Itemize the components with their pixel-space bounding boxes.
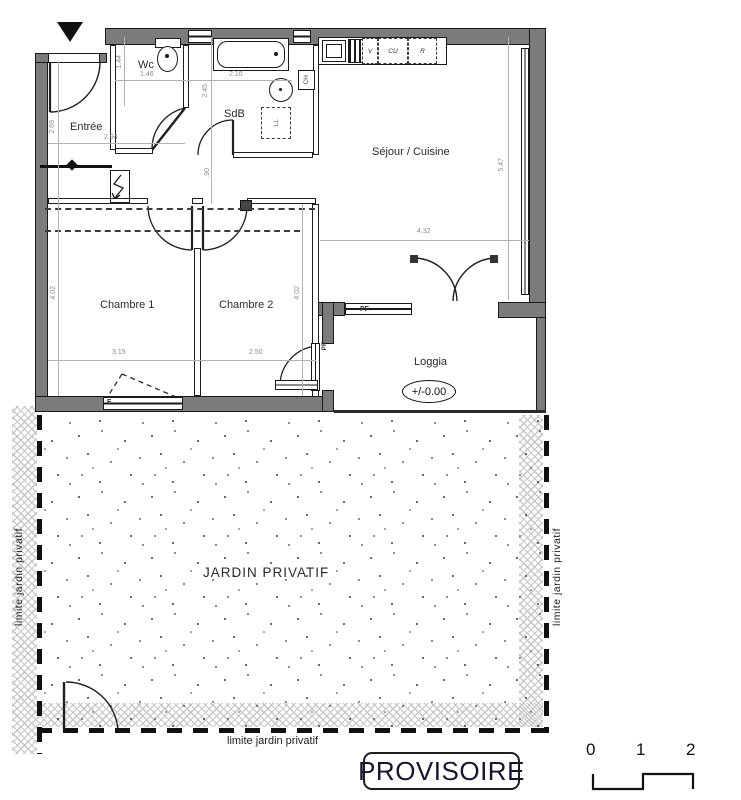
chambre2-door-arc [203,206,247,250]
dim-chambre1-w: 3.15 [112,349,126,356]
garden-hatch-bottom [37,703,543,727]
floor-plan: LL CH V CU R 1.44 1.46 2.16 2.45 2.69 2.… [0,0,741,800]
washer-label: LL [273,119,280,126]
room-label-sejour: Séjour / Cuisine [372,146,450,158]
room-label-jardin: JARDIN PRIVATIF [203,565,329,580]
limit-label-left: limite jardin privatif [13,528,25,626]
room-label-wc: Wc [138,59,154,71]
dim-line-sejour-horiz [320,240,529,241]
kitchen-v-label: V [368,48,372,55]
window-chambre2-pf-leaf [275,380,318,390]
window-top-sdb-right [293,30,311,43]
wall-right [529,28,546,318]
kitchen-slot-v: V [362,38,378,64]
toilet-bowl [157,46,178,72]
garden-hatch-right [519,415,543,727]
toilet-drain [165,54,169,58]
loggia-door-post-right [490,255,498,263]
partition-sdb-bottom [233,152,313,158]
room-label-sdb: SdB [224,108,245,120]
partition-hall-chambres-left [48,198,148,204]
scale-tick-1: 1 [636,740,645,760]
loggia-door-arc-right [453,258,495,301]
dim-sdb-h: 2.45 [202,84,209,98]
wall-bottom [35,396,334,412]
dim-line-wc-vert [124,37,125,106]
chambre1-window-swing [108,374,176,397]
dim-entree-w: 2.94 [104,134,118,141]
dim-sejour-w: 4.32 [417,228,431,235]
room-label-loggia: Loggia [414,356,447,368]
partition-wc-sdb [183,45,189,108]
kitchen-sink-inner [326,44,342,58]
electrical-panel-box [110,170,130,203]
chambre1-door-arc [148,206,192,250]
water-heater-box: CH [298,70,315,90]
kitchen-slot-cu: CU [378,38,408,64]
wall-right-loggia [536,302,546,413]
window-chambre1-f [103,397,183,410]
kitchen-r-label: R [420,48,425,55]
level-marker: +/-0.00 [402,380,456,403]
dim-sdb-w: 2.16 [229,71,243,78]
partition-chambre1-chambre2 [194,248,201,396]
room-label-entree: Entrée [70,121,102,133]
dim-line-sejour-vert [508,37,509,300]
dim-chambre2-h: 4.02 [294,286,301,300]
sdb-door-arc [198,120,233,155]
entrance-marker-triangle [57,22,83,42]
dim-wc-h: 1.44 [116,55,123,69]
garden-limit-line-left [37,415,42,754]
wall-sejour-loggia-right [498,302,546,318]
wardrobe-diamond [66,159,77,170]
garden-limit-line-bottom [37,728,549,733]
scale-tick-0: 0 [586,740,595,760]
dim-entree-h: 2.69 [49,120,56,134]
loggia-garden-edge [334,410,546,413]
bathtub-drain [274,52,278,56]
partition-wc-bottom [115,148,153,154]
limit-label-right: limite jardin privatif [551,528,563,626]
dim-line-sdb-vert [211,37,212,204]
water-heater-label: CH [303,75,310,84]
wall-loggia-left-lower [322,390,334,412]
window-top-sdb-left [188,30,212,43]
dim-sejour-h: 5.47 [498,158,505,172]
loggia-door-post-left [410,255,418,263]
dim-wc-w: 1.46 [140,71,154,78]
window-sejour-right [521,48,529,295]
limit-label-bottom: limite jardin privatif [227,735,318,747]
wall-left [35,53,48,412]
washbasin-drain [279,88,282,91]
pf-chambre2-label: PF [321,342,328,350]
kitchen-slot-r: R [408,38,437,64]
window-sejour-pf-loggia [345,303,412,315]
kitchen-cu-label: CU [388,48,397,55]
dim-line-left-vert [58,62,59,396]
scale-bar-line [593,774,693,789]
room-label-chambre1: Chambre 1 [100,299,154,311]
f-window-label: F [107,399,111,406]
dim-line-chambres-horiz [48,360,316,361]
soffit-dashed-line-1 [45,208,315,210]
dim-chambre2-w: 2.50 [249,349,263,356]
provisoire-text: PROVISOIRE [358,756,525,787]
dim-hall-passage: .90 [204,168,211,178]
soffit-dashed-line-2 [45,230,300,232]
loggia-door-arc-left [415,258,457,301]
garden-limit-line-right [544,415,549,733]
provisoire-stamp: PROVISOIRE [363,752,520,790]
entrance-threshold [48,53,100,63]
dim-line-chambre2-vert [302,204,303,396]
scale-tick-2: 2 [686,740,695,760]
partition-hall-chambres-mid [192,198,203,204]
dim-line-wc-sdb-horiz [115,80,292,81]
wall-loggia-left-upper [322,302,334,344]
level-marker-value: +/-0.00 [412,386,447,398]
pf-loggia-label: PF [360,306,369,313]
room-label-chambre2: Chambre 2 [219,299,273,311]
partition-hall-chambres-right [247,198,316,204]
washer-box: LL [261,107,291,139]
dim-line-entree-horiz [48,143,185,144]
dim-chambre1-h: 4.02 [50,286,57,300]
